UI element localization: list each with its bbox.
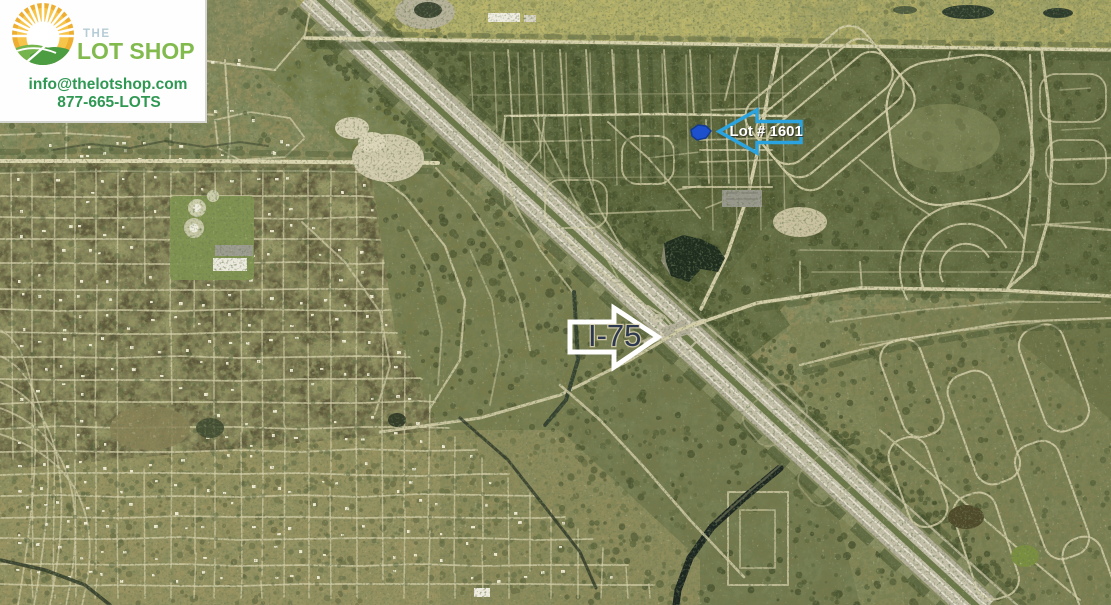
- svg-text:Lot # 1601: Lot # 1601: [730, 123, 803, 140]
- svg-text:I-75: I-75: [588, 318, 641, 353]
- svg-text:info@thelotshop.com: info@thelotshop.com: [29, 76, 188, 93]
- svg-text:LOT SHOP: LOT SHOP: [77, 38, 195, 64]
- svg-text:877-665-LOTS: 877-665-LOTS: [57, 94, 160, 111]
